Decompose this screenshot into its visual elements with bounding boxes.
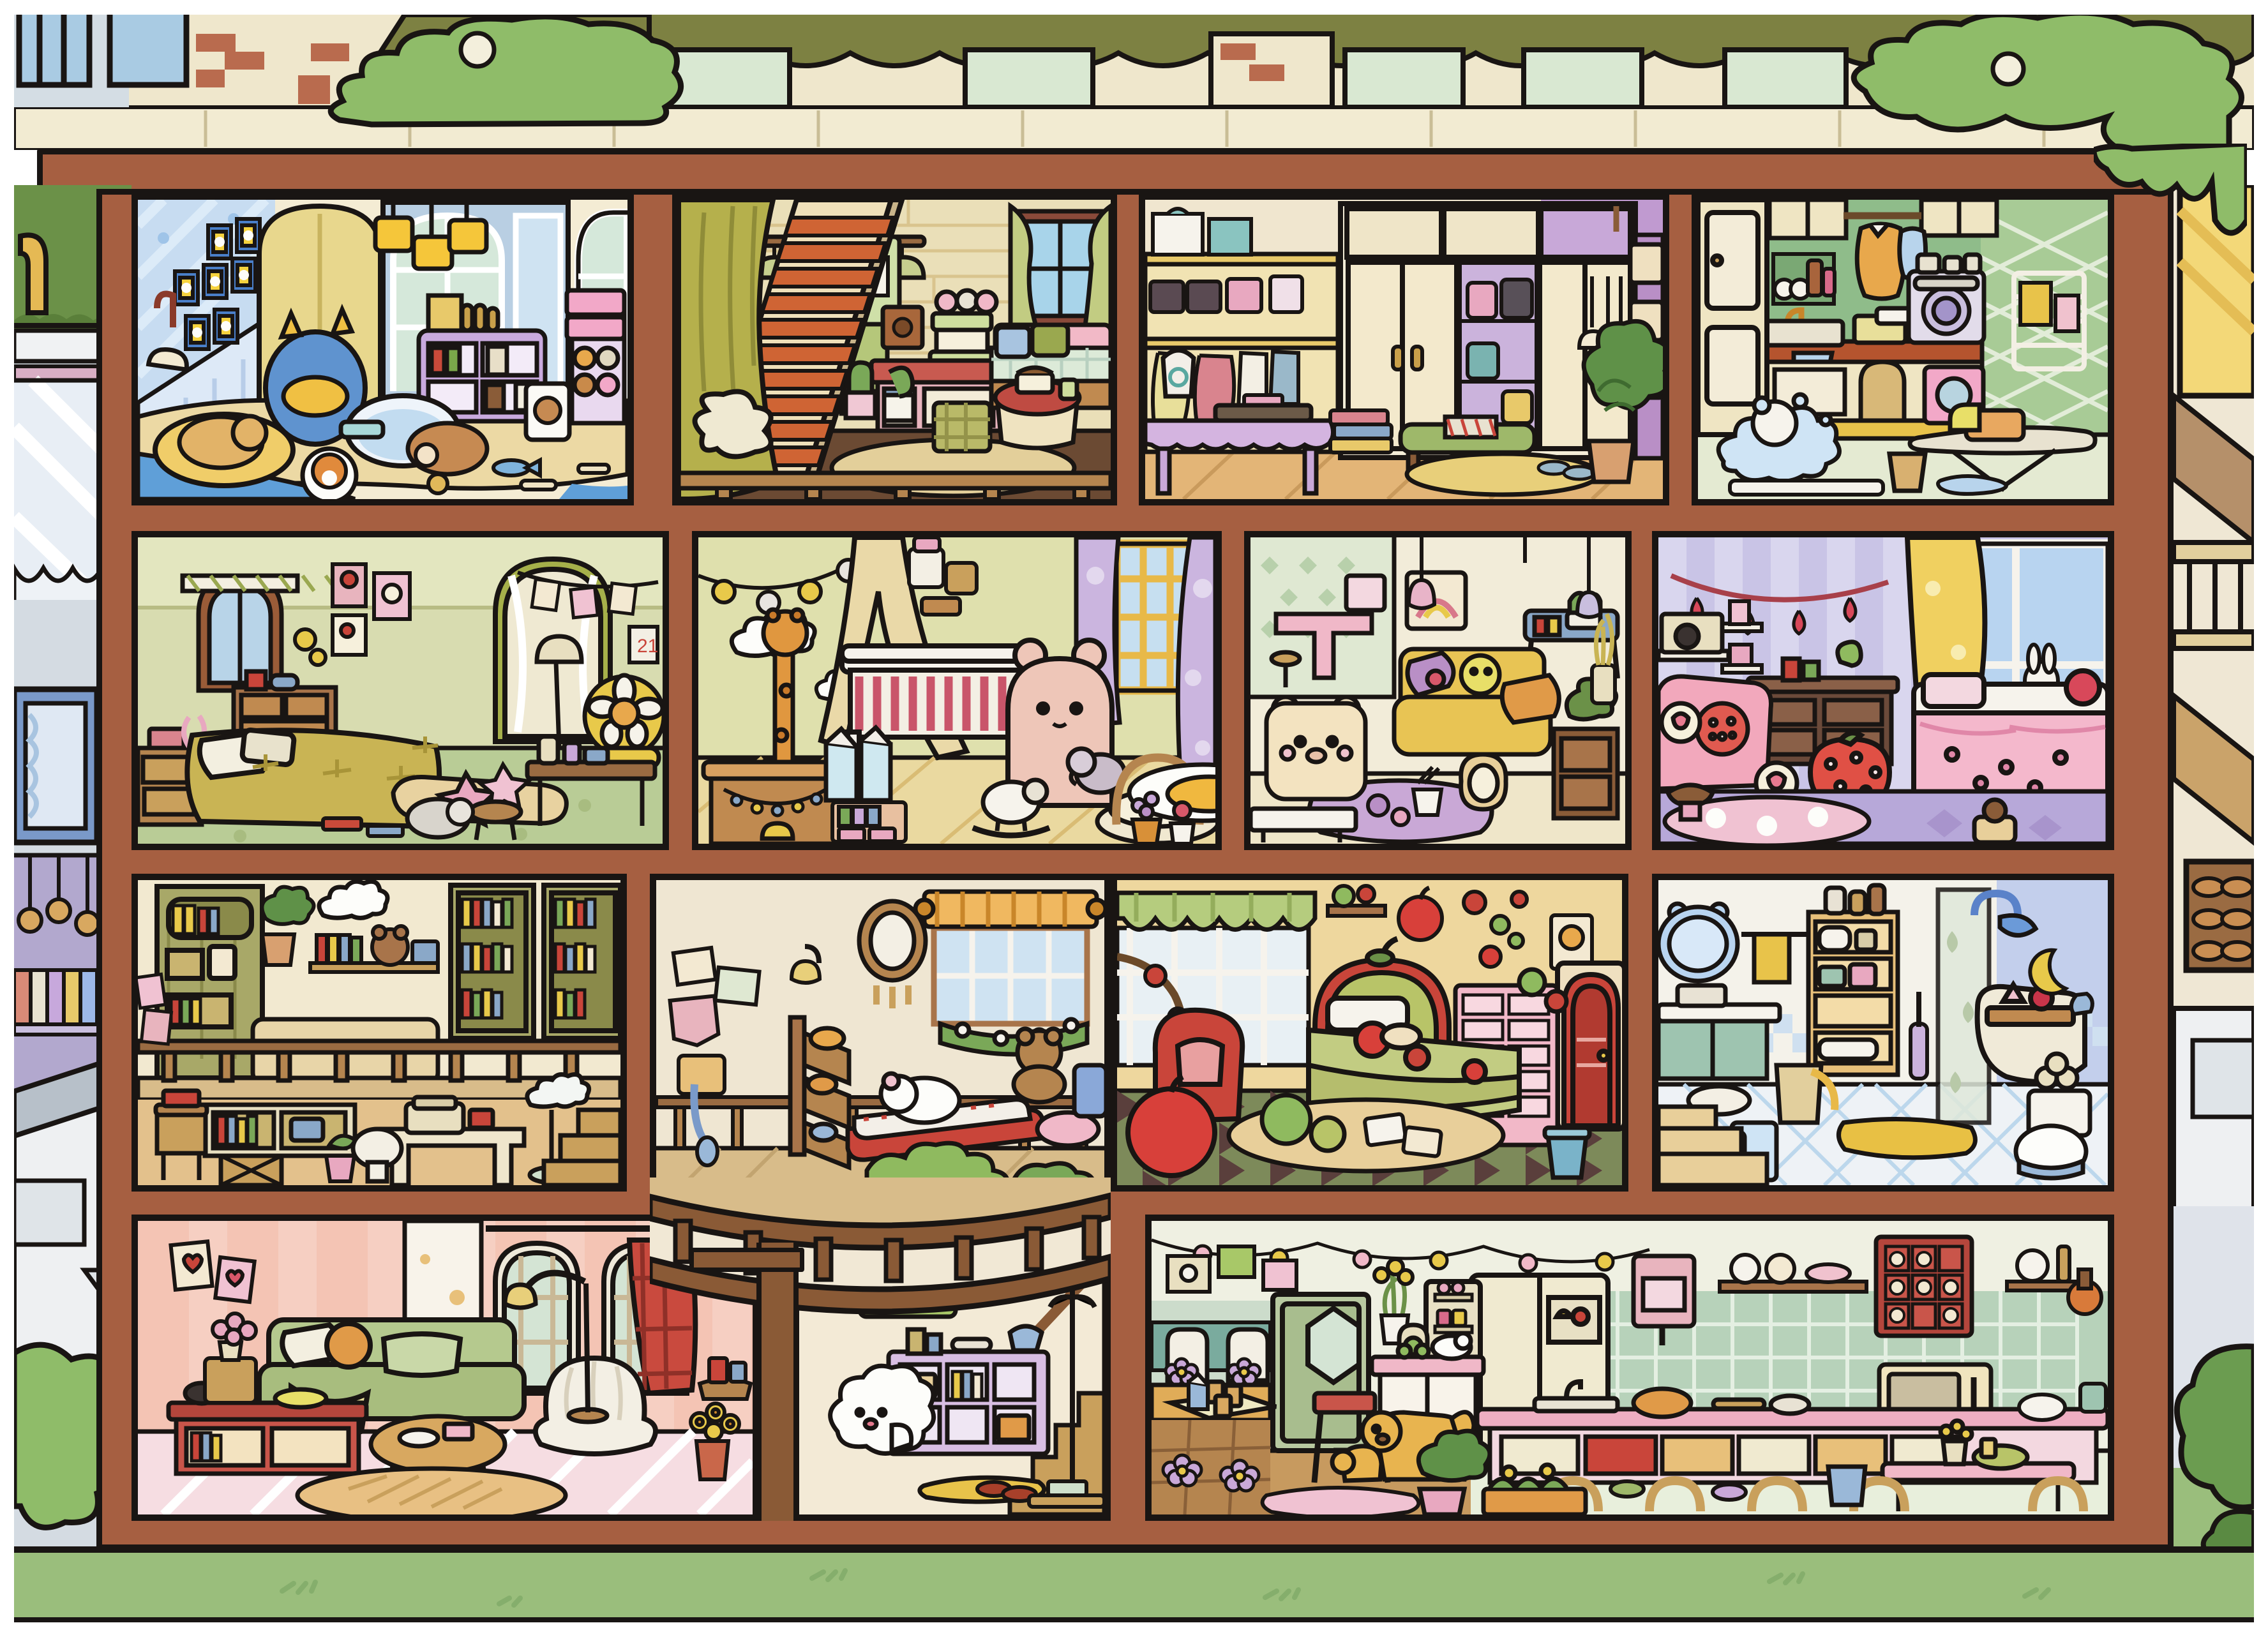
svg-text:21: 21 — [637, 636, 658, 657]
